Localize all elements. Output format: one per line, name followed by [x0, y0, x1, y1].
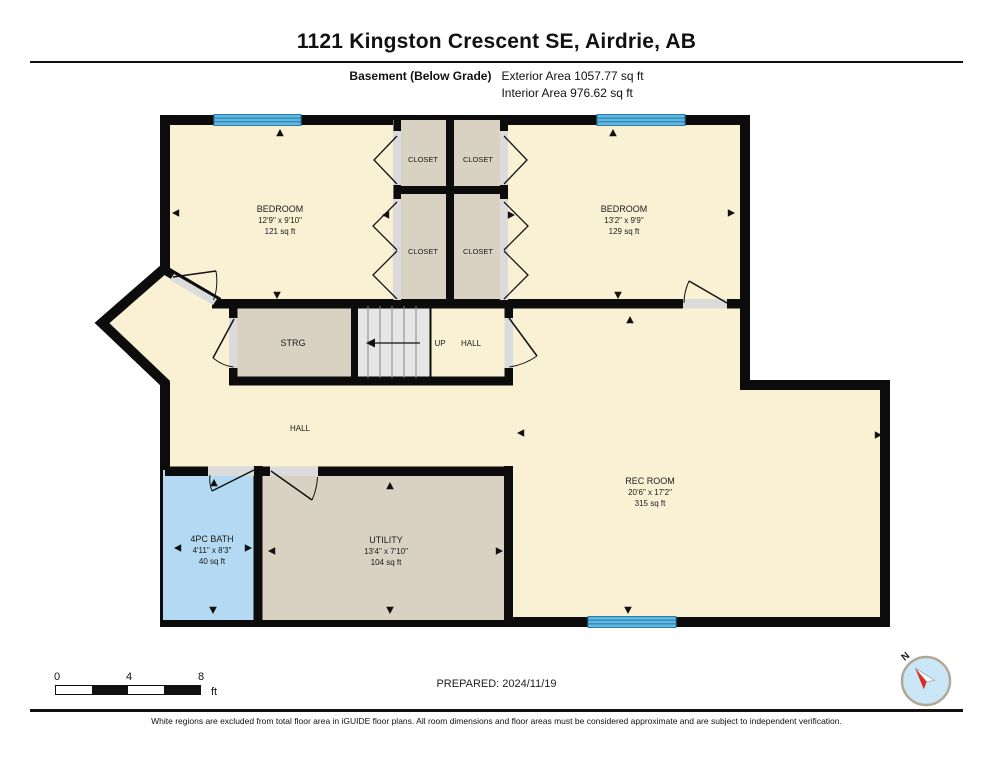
utility-dims: 13'4" x 7'10"	[364, 547, 408, 556]
footer-divider	[30, 709, 963, 712]
stairs-fill	[355, 303, 431, 381]
bedroom-right-dims: 13'2" x 9'9"	[604, 216, 644, 225]
floor-plan-drawing: BEDROOM 12'9" x 9'10" 121 sq ft BEDROOM …	[0, 0, 993, 768]
bath-dims: 4'11" x 8'3"	[193, 546, 232, 555]
closet-tr-label: CLOSET	[463, 155, 493, 164]
bath-area: 40 sq ft	[199, 557, 226, 566]
bedroom-right-name: BEDROOM	[601, 204, 648, 214]
stairs-up-label: UP	[434, 339, 445, 348]
hall-label: HALL	[290, 424, 311, 433]
utility-area: 104 sq ft	[371, 558, 402, 567]
utility-name: UTILITY	[369, 535, 403, 545]
closet-br-label: CLOSET	[463, 247, 493, 256]
bath-door-opening	[208, 467, 254, 477]
bedroom-left-name: BEDROOM	[257, 204, 304, 214]
strg-label: STRG	[280, 338, 305, 348]
closet-tl-label: CLOSET	[408, 155, 438, 164]
bedroom-right-area: 129 sq ft	[609, 227, 640, 236]
disclaimer-text: White regions are excluded from total fl…	[0, 716, 993, 726]
floor-plan-page: 1121 Kingston Crescent SE, Airdrie, AB B…	[0, 0, 993, 768]
rec-room-name: REC ROOM	[625, 476, 675, 486]
utility-fill	[257, 470, 509, 620]
window-rec-room	[588, 617, 676, 628]
bedroom-right-door-opening	[683, 299, 727, 309]
window-bedroom-left	[214, 115, 301, 126]
hall-landing-door-opening	[505, 318, 514, 368]
bedroom-left-dims: 12'9" x 9'10"	[258, 216, 302, 225]
window-bedroom-right	[597, 115, 685, 126]
bedroom-left-area: 121 sq ft	[265, 227, 296, 236]
bath-fill	[163, 470, 257, 620]
prepared-date: PREPARED: 2024/11/19	[0, 678, 993, 690]
closet-bl-label: CLOSET	[408, 247, 438, 256]
rec-room-area: 315 sq ft	[635, 499, 666, 508]
hall-landing-label: HALL	[461, 339, 482, 348]
rec-room-dims: 20'6" x 17'2"	[628, 488, 672, 497]
bath-name: 4PC BATH	[190, 534, 233, 544]
compass-icon: N	[897, 648, 950, 705]
